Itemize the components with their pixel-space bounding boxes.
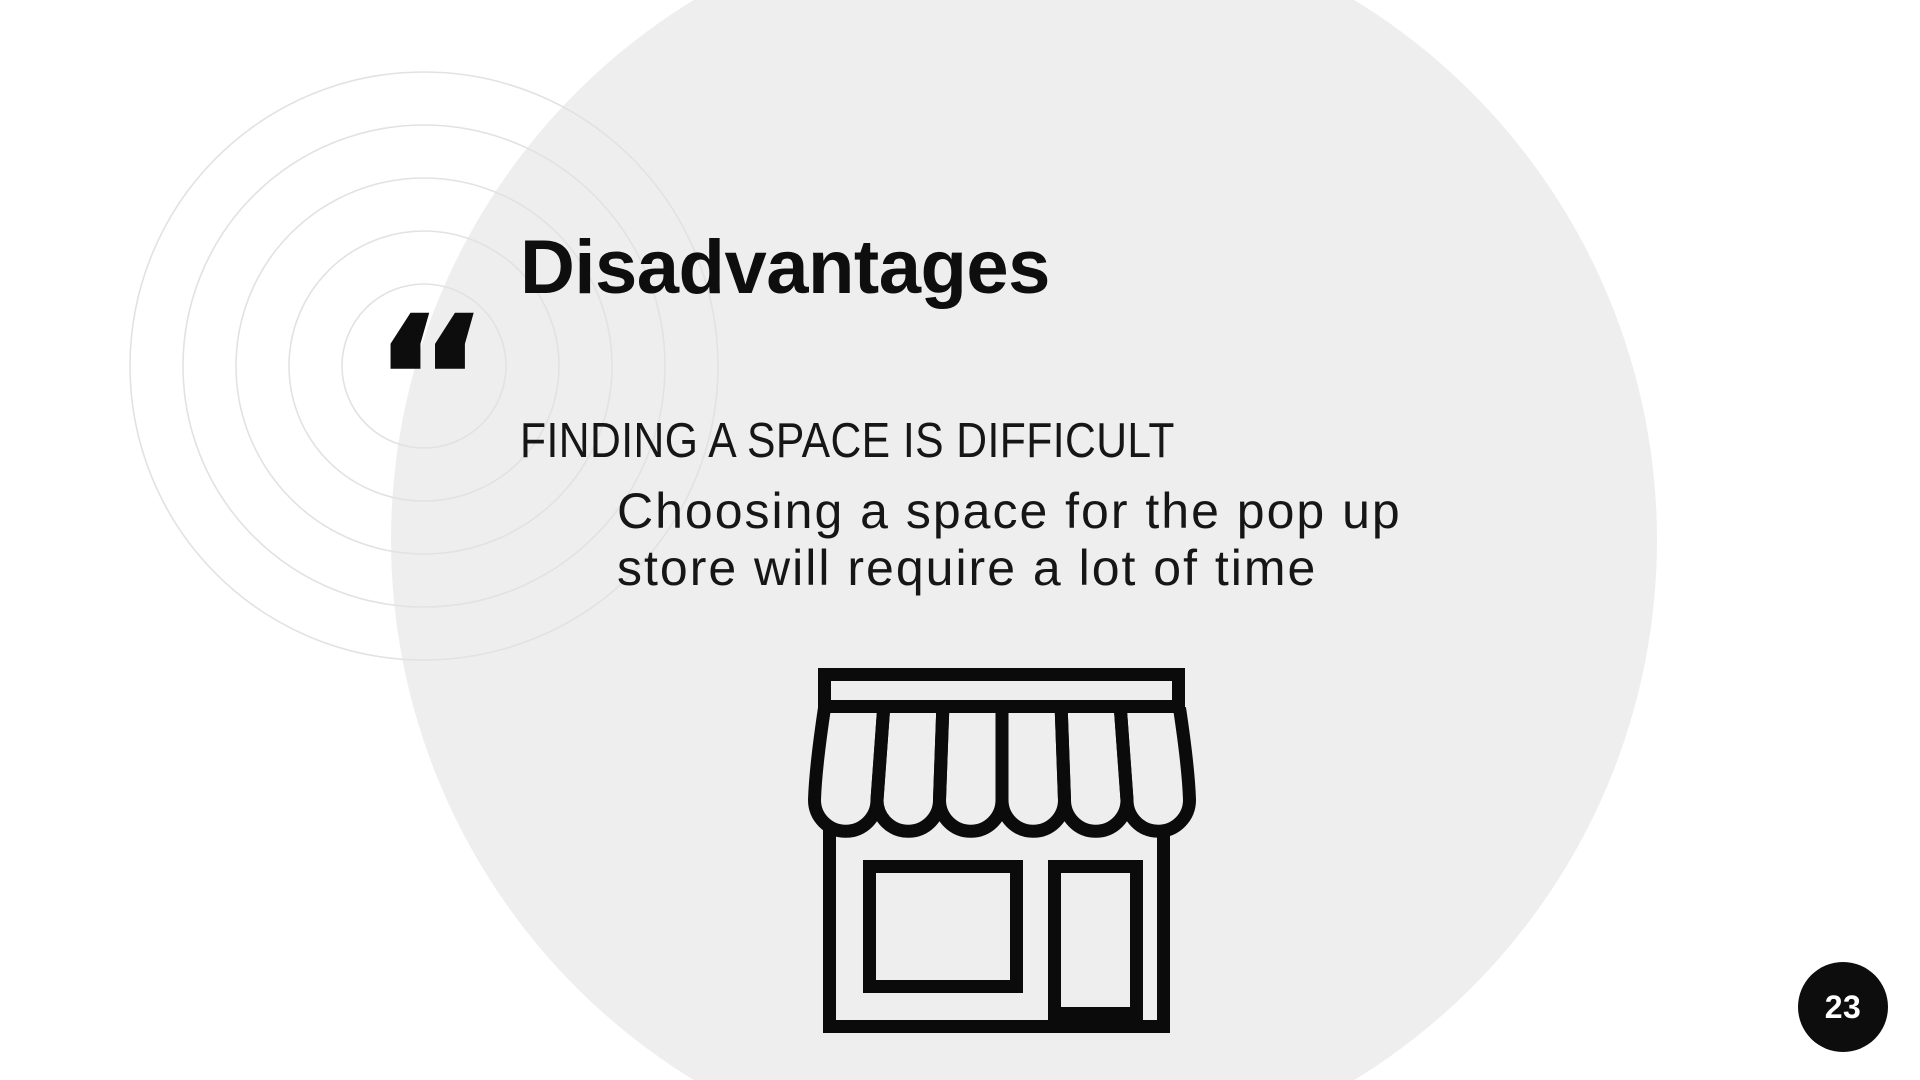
quote-icon: “: [372, 293, 478, 473]
slide-title: Disadvantages: [520, 230, 1050, 306]
store-sign-bar: [825, 675, 1179, 707]
body-line-1: Choosing a space for the pop up: [617, 483, 1402, 540]
page-number: 23: [1825, 989, 1862, 1026]
slide-canvas: “ Disadvantages FINDING A SPACE IS DIFFI…: [0, 0, 1920, 1080]
storefront-icon: [808, 668, 1196, 1037]
store-body: [830, 826, 1164, 1027]
store-door: [1055, 867, 1137, 1014]
store-window: [870, 867, 1017, 987]
slide-subtitle: FINDING A SPACE IS DIFFICULT: [520, 417, 1175, 466]
body-line-2: store will require a lot of time: [617, 540, 1402, 597]
store-awning: [815, 708, 1190, 831]
slide-body-text: Choosing a space for the pop up store wi…: [617, 483, 1402, 597]
page-number-badge: 23: [1798, 962, 1888, 1052]
